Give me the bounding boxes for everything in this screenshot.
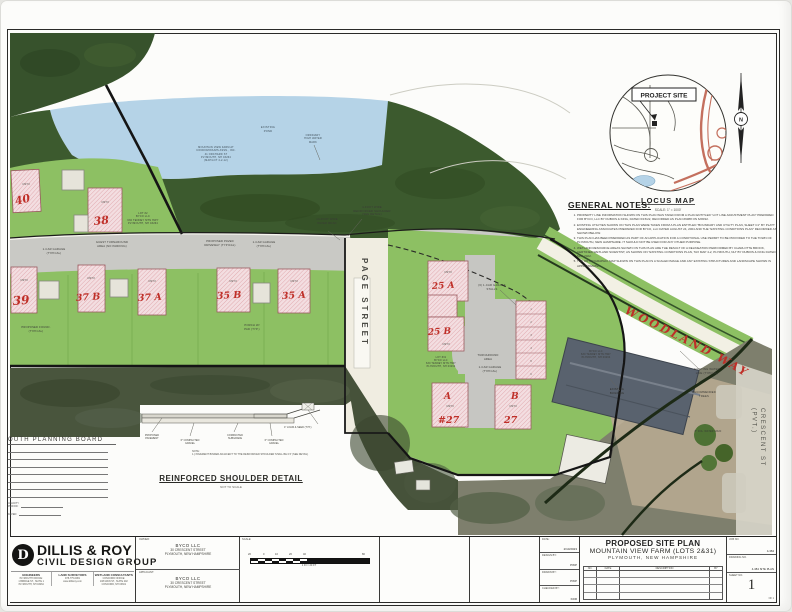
label-lot31-owner: LOT #31 BYCO LLC 630 TENNEY MTN HWY PLYM… (418, 356, 464, 369)
detail-note: NOTE: 1.) PAVEMENT BINDER ADJACENT TO TH… (192, 450, 310, 457)
revision-row (584, 593, 722, 599)
crescent-street-pvt: (PVT.) (749, 408, 757, 518)
lot-25b-label: 25 B (427, 327, 452, 338)
firm-division-engineers: ENGINEERS PLYMOUTH OFFICE: 1 BRIDGE ST.,… (11, 572, 51, 586)
firm-logo-block: D DILLIS & ROY CIVIL DESIGN GROUP ENGINE… (10, 537, 136, 602)
owner-label: OWNER: (139, 538, 237, 541)
revision-row (584, 585, 722, 592)
svg-text:UNIT #: UNIT # (20, 279, 28, 282)
scale-tick: 20 (248, 553, 251, 556)
job-number-value: 4-384 (767, 549, 774, 553)
label-pond-owner: MOUNTAIN VIEW FARM AT CONDOMINIUMS ASSN.… (180, 146, 252, 162)
scale-tick: 40 (303, 553, 306, 556)
label-water-line: EXISTING WATER LINE (TYPICAL) (686, 368, 728, 375)
note-item: EXISTING UTILITIES SHOWN ON THIS PLAN WE… (577, 223, 780, 235)
drawing-title-block: PROPOSED SITE PLAN MOUNTAIN VIEW FARM (L… (580, 537, 727, 602)
checked-by-value: KDR (571, 597, 577, 601)
sheet-number-cell: SHEET NO. 1 OF 1 (727, 573, 776, 601)
rev-col-date: DATE (597, 567, 620, 570)
lot-b-number: 27 (503, 415, 518, 426)
planning-board-heading: OUTH PLANNING BOARD (8, 437, 116, 445)
label-paved-road: 14-FOOT WIDE PAVED ROAD (306, 218, 348, 225)
scale-label: SCALE: (242, 538, 251, 541)
svg-text:UNIT #: UNIT # (229, 280, 237, 283)
label-water-main: 8" DIA. WATER MAIN (682, 430, 734, 433)
job-number-cell: JOB NO. 4-384 (727, 537, 776, 555)
note-item: PROPERTY LINE INFORMATION SHOWN ON THIS … (577, 213, 780, 221)
signature-line (8, 453, 108, 461)
detail-loam-label: 4" LOAM & SEED (TYP.) (284, 426, 330, 429)
label-recommended-trees: RECOMMENDED TREES (684, 391, 724, 398)
office-address: PLYMOUTH OFFICE: 1 BRIDGE ST., SUITE 1 P… (11, 577, 51, 586)
lot-35a-label: 35 A (282, 290, 306, 302)
dated-label: DATED: (8, 513, 17, 516)
planning-board-block: OUTH PLANNING BOARD VALIDITY PERIOD: DAT… (8, 437, 116, 516)
label-porch-typical: PORCH W/ PAD (TYP.) (234, 324, 270, 331)
page-street-label: PAGE STREET (360, 258, 369, 347)
drawing-number-value: 4-384 SITE PLAN (752, 567, 774, 571)
project-site-label: PROJECT SITE (641, 93, 689, 100)
checked-by-label: CHECKED BY: (542, 587, 577, 590)
title-block-spare2 (470, 537, 540, 602)
applicant-address2: PLYMOUTH, NEW HAMPSHIRE (139, 585, 237, 589)
lot-37b-label: 37 B (75, 291, 100, 304)
applicant-cell: APPLICANT: BYCO LLC 30 CRESCENT STREET P… (136, 570, 240, 603)
svg-text:UNIT #: UNIT # (290, 280, 298, 283)
signature-line (8, 445, 108, 453)
crescent-street-label: CRESCENT ST (PVT.) (749, 408, 766, 518)
label-lot2-owner: LOT #2 BYCO LLC 630 TENNEY MTN HWY PLYMO… (118, 212, 168, 225)
design-cell: DESIGN BY: PWP (540, 553, 579, 569)
drawing-number-cell: DRAWING NO. 4-384 SITE PLAN (727, 555, 776, 573)
date-cell: DATE: 2/10/2023 (540, 537, 579, 553)
title-block: D DILLIS & ROY CIVIL DESIGN GROUP ENGINE… (10, 536, 776, 602)
label-driveway-typical: PROPOSED PAVED DRIVEWAY (TYPICAL) (196, 240, 244, 247)
title-block-spare1 (380, 537, 470, 602)
locus-map: PROJECT SITE LOCUS MAP SCALE: 1" = 1000' (610, 75, 749, 212)
svg-text:UNIT #: UNIT # (101, 201, 109, 204)
rev-col-no: NO. (584, 567, 597, 570)
label-guest-turnaround: GUEST TURNAROUND AREA (NO PARKING) (88, 241, 136, 248)
note-item: WETLAND RESOURCE AREAS SHOWN ON THIS PLA… (577, 246, 780, 258)
revision-table: NO. DATE DESCRIPTION BY (583, 566, 723, 600)
rev-col-description: DESCRIPTION (620, 567, 710, 570)
label-turnaround: TURNAROUND AREA (470, 354, 506, 361)
detail-title: REINFORCED SHOULDER DETAIL (132, 474, 330, 483)
drawn-by-label: DRAWN BY: (542, 571, 577, 574)
crescent-pad2 (722, 473, 746, 513)
scale-tick: 0 (263, 553, 264, 556)
owner-cell: OWNER: BYCO LLC 30 CRESCENT STREET PLYMO… (136, 537, 240, 570)
office-address: CONCORD OFFICE: 108 MAIN ST., SUITE 202 … (94, 577, 134, 586)
detail-gravel-left-label: 6" COMPACTED GRAVEL (172, 439, 208, 445)
lot-b-label: B (510, 392, 519, 402)
firm-name: DILLIS & ROY (37, 542, 132, 558)
lot-a-number: #27 (438, 415, 460, 426)
svg-text:UNIT #: UNIT # (446, 405, 454, 408)
label-high-water-mark: ORDINARY HIGH WATER MARK (294, 134, 332, 144)
general-notes-heading: GENERAL NOTES: (568, 200, 780, 210)
signature-line (8, 468, 108, 476)
detail-pavement-label: PROPOSED PAVEMENT (134, 434, 170, 440)
svg-text:UNIT #: UNIT # (509, 405, 517, 408)
north-label: N (739, 118, 743, 124)
design-by-value: PWP (570, 563, 577, 567)
checked-cell: CHECKED BY: KDR (540, 586, 579, 602)
drawn-by-value: PWP (570, 579, 577, 583)
note-item: THIS PLAN HAS BEEN PREPARED AS PART OF A… (577, 236, 780, 244)
lot-35b-label: 35 B (217, 290, 242, 302)
revision-row (584, 571, 722, 578)
lot-37a-label: 37 A (138, 292, 162, 304)
label-garage-typical-west: 1-CAR GARAGE (TYPICAL) (34, 248, 74, 255)
revision-row (584, 578, 722, 585)
firm-division-surveyors: LAND SURVEYORS 978-775-0081 www.dillisro… (51, 572, 92, 586)
date-label: DATE: (542, 538, 577, 541)
lot-38-label: 38 (93, 213, 110, 228)
svg-text:UNIT #: UNIT # (442, 343, 450, 346)
dated-line (19, 512, 61, 516)
drawn-cell: DRAWN BY: PWP (540, 570, 579, 586)
crescent-street-name: CRESCENT ST (757, 408, 765, 518)
scanned-sheet: 1 2 3 4 5 6 UNIT # UNIT # UNIT # UNIT # … (0, 0, 792, 612)
general-notes: GENERAL NOTES: PROPERTY LINE INFORMATION… (568, 200, 780, 269)
scale-bar: 20 0 10 20 40 80 1 IN = 20 FT (250, 553, 370, 569)
label-existing-building: EXISTING BUILDING (600, 388, 634, 395)
shoulder-detail-drawing (132, 402, 330, 436)
signature-line (8, 483, 108, 491)
office-contact: 978-775-0081 www.dillisroy.com (52, 577, 92, 583)
label-garage-stalls: (6) 1-CAR GARAGE STALLS (470, 284, 514, 291)
owner-applicant-block: OWNER: BYCO LLC 30 CRESCENT STREET PLYMO… (136, 537, 240, 602)
design-by-label: DESIGN BY: (542, 554, 577, 557)
drawing-title-line2: MOUNTAIN VIEW FARM (LOTS 2&31) (580, 548, 726, 555)
svg-text:UNIT #: UNIT # (87, 277, 95, 280)
firm-division-wetland: WETLAND CONSULTANTS CONCORD OFFICE: 108 … (93, 572, 134, 586)
rev-col-by: BY (710, 567, 722, 570)
lot-39-label: 39 (12, 293, 30, 308)
label-garage-typical-mid: 1-CAR GARAGE (TYPICAL) (244, 241, 284, 248)
signature-line (8, 475, 108, 483)
drawing-title-line1: PROPOSED SITE PLAN (580, 539, 726, 548)
scale-block: SCALE: 20 0 10 20 40 80 1 IN = 20 FT (240, 537, 380, 602)
shoulder-detail: PROPOSED PAVEMENT 6" COMPACTED GRAVEL CO… (132, 402, 330, 508)
meta-block: DATE: 2/10/2023 DESIGN BY: PWP DRAWN BY:… (540, 537, 580, 602)
label-proposed-foundation: PROPOSED FOUND. (TYPICAL) (14, 326, 58, 333)
job-number-label: JOB NO. (729, 538, 774, 541)
validity-line (21, 504, 63, 508)
label-byco-parcel: BYCO LLC 630 TENNEY MTN HWY PLYMOUTH, NH… (572, 350, 620, 359)
lot-25a-label: 25 A (431, 281, 455, 292)
validity-label: VALIDITY PERIOD: (8, 502, 19, 508)
scale-tick: 10 (275, 553, 278, 556)
date-value: 2/10/2023 (564, 547, 577, 551)
sheet-of-value: OF 1 (769, 597, 774, 600)
scale-caption: 1 IN = 20 FT (250, 564, 368, 567)
owner-address2: PLYMOUTH, NEW HAMPSHIRE (139, 552, 237, 556)
signature-line (8, 490, 108, 498)
site-plan-drawing: 1 2 3 4 5 6 UNIT # UNIT # UNIT # UNIT # … (10, 33, 776, 536)
svg-text:UNIT #: UNIT # (22, 183, 30, 186)
sheet-id-block: JOB NO. 4-384 DRAWING NO. 4-384 SITE PLA… (727, 537, 776, 602)
svg-text:UNIT #: UNIT # (148, 280, 156, 283)
scale-tick: 20 (289, 553, 292, 556)
drawing-number-label: DRAWING NO. (729, 556, 774, 559)
applicant-label: APPLICANT: (139, 571, 237, 574)
lot-a-label: A (443, 392, 451, 402)
scale-tick: 80 (362, 553, 365, 556)
drawing-title-line3: PLYMOUTH, NEW HAMPSHIRE (580, 555, 726, 560)
detail-subgrade-label: COMPACTED SUBGRADE (218, 434, 252, 440)
svg-text:UNIT #: UNIT # (444, 271, 452, 274)
firm-emblem-icon: D (12, 544, 34, 566)
signature-line (8, 460, 108, 468)
note-item: THE ORTHOGRAPHIC MAP SHOWN ON THIS PLAN … (577, 259, 780, 267)
label-garage-typical-east: 1-CAR GARAGE (TYPICAL) (470, 366, 510, 373)
sheet-number-value: 1 (727, 577, 776, 594)
label-reinforced-shoulder: 4-FOOT WIDE REINFORCED SHOULDER (SEE DET… (344, 206, 400, 217)
detail-gravel-right-label: 6" COMPACTED GRAVEL (256, 439, 292, 445)
detail-not-to-scale: NOT TO SCALE (132, 485, 330, 489)
north-arrow-icon: N (735, 73, 748, 163)
label-existing-pond: EXISTING POND (248, 126, 288, 133)
